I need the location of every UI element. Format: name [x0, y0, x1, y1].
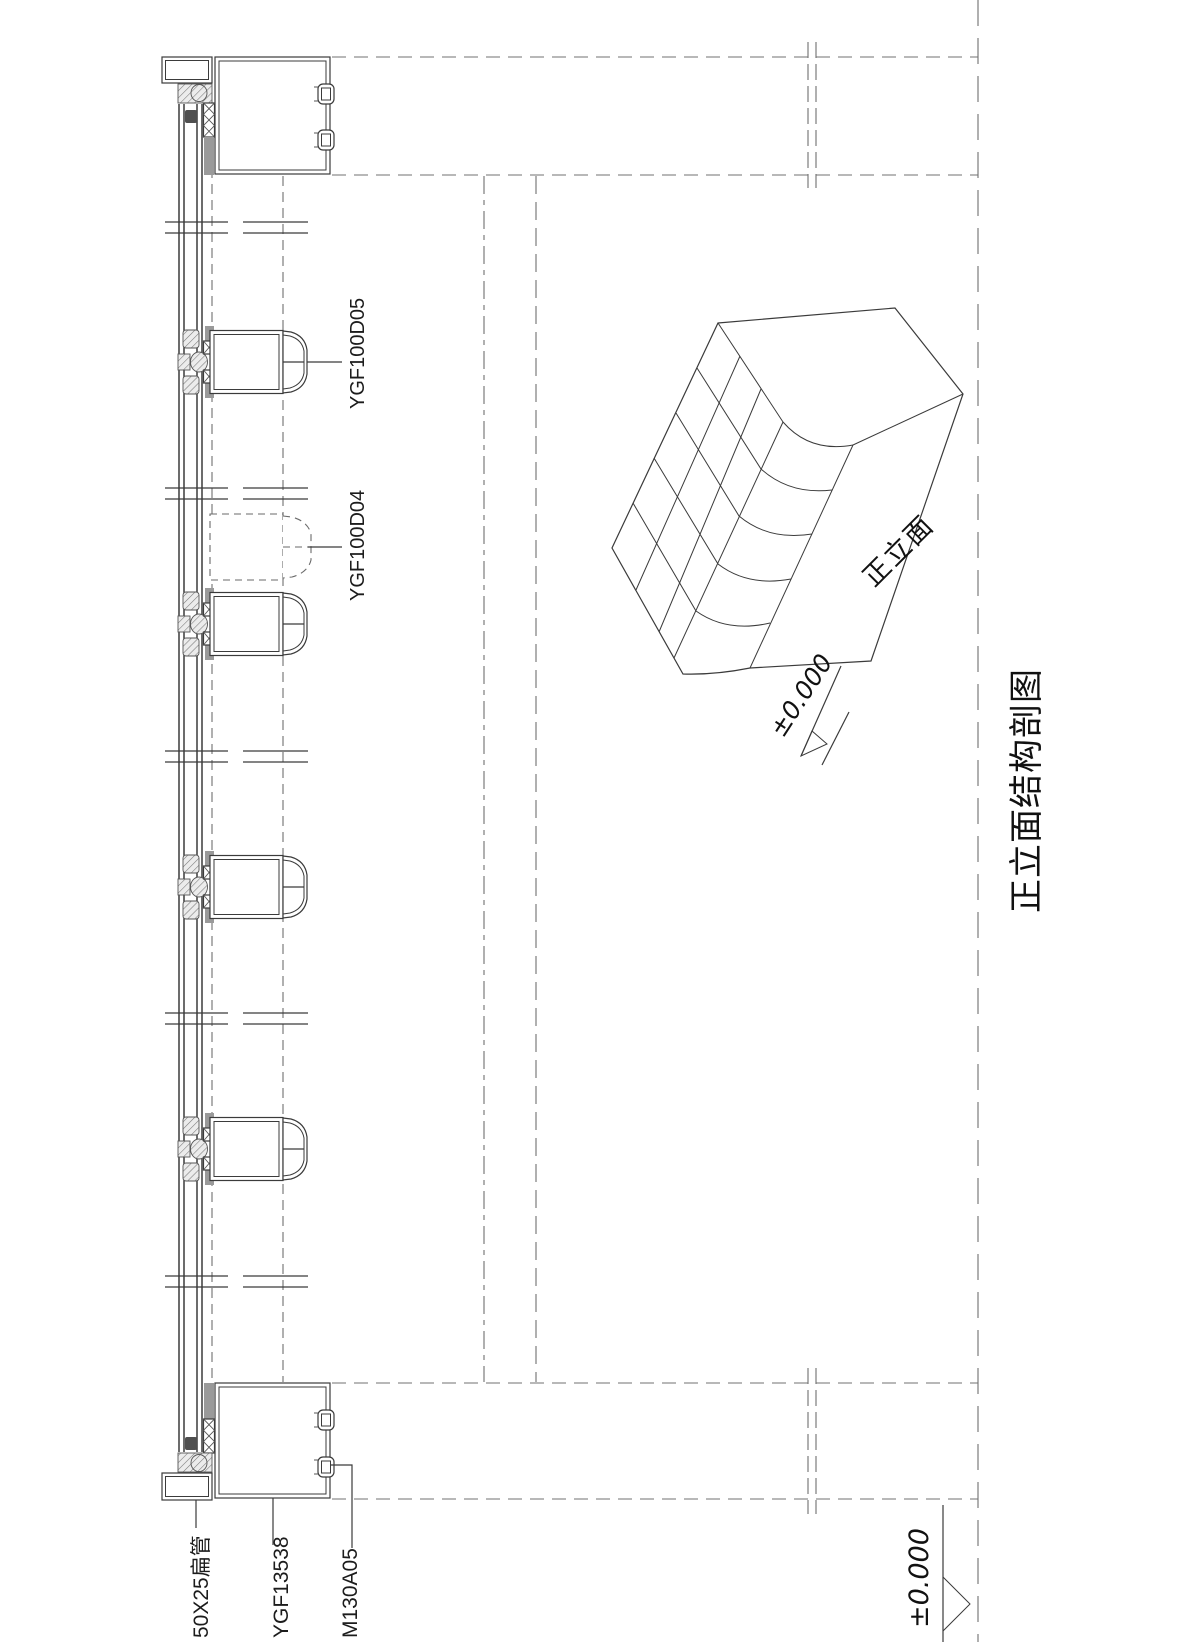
mullion-junction [178, 1113, 307, 1185]
cad-sheet: ±0.000 正立面 YGF100D05 YGF100D04 50X25扁管 Y… [0, 0, 1200, 1642]
sill-frame-profile [215, 1383, 330, 1498]
setting-block [185, 1437, 197, 1450]
label-mullion: YGF100D05 [347, 298, 369, 409]
drawing-title: 正立面结构剖图 [1008, 668, 1046, 913]
bottom-level-text: ±0.000 [904, 1528, 935, 1628]
mullion-junction [178, 588, 307, 660]
label-flat-tube: 50X25扁管 [190, 1535, 213, 1638]
sill-flat-tube [162, 1473, 212, 1500]
head-frame-profile [215, 57, 330, 174]
label-frame-profile: YGF13538 [270, 1536, 293, 1638]
label-clip: M130A05 [339, 1548, 362, 1638]
cad-drawing-canvas: ±0.000 正立面 YGF100D05 YGF100D04 50X25扁管 Y… [0, 0, 1200, 1642]
mullion-junction [178, 851, 307, 923]
setting-block [185, 110, 197, 123]
mullion-junction [178, 326, 307, 398]
label-mullion-hidden: YGF100D04 [347, 490, 369, 601]
hidden-mullion-profile [210, 514, 311, 580]
